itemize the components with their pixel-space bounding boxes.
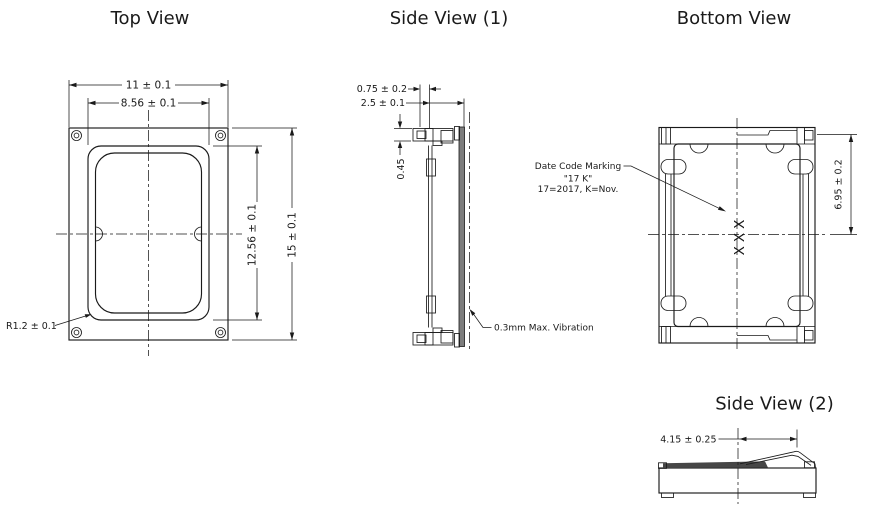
dim-terminal-protrusion-label: 0.75 ± 0.2	[357, 84, 407, 95]
bottom-view: Bottom View XXX Date Code Marki	[535, 8, 857, 352]
top-view: Top View 11 ± 0.1	[6, 8, 299, 356]
bottom-view-title: Bottom View	[677, 8, 791, 29]
side-view-1: Side View (1)	[357, 8, 594, 352]
foot	[662, 493, 674, 498]
top-view-title: Top View	[110, 8, 190, 29]
date-code-line3: 17=2017, K=Nov.	[538, 185, 619, 195]
side-view-1-title: Side View (1)	[390, 8, 509, 29]
date-code-line1: Date Code Marking	[535, 162, 621, 172]
dim-center-to-edge: 6.95 ± 0.2	[817, 135, 857, 235]
body-back-edge	[429, 146, 433, 328]
corner-radius-callout: R1.2 ± 0.1	[6, 314, 92, 332]
dim-inner-height-label: 12.56 ± 0.1	[247, 204, 259, 266]
date-code-line2: "17 K"	[564, 175, 593, 185]
dim-inner-height: 12.56 ± 0.1	[213, 146, 262, 320]
top-terminal	[413, 127, 460, 146]
top-strip	[663, 461, 768, 468]
corner-eyelet	[72, 131, 82, 141]
drawing-sheet: Top View 11 ± 0.1	[0, 0, 870, 508]
front-face	[459, 127, 465, 347]
dim-terminal-thickness-label: 0.45	[396, 158, 407, 179]
side-view-2: Side View (2) 4.15 ± 0.25	[659, 394, 834, 505]
dim-outer-height-label: 15 ± 0.1	[287, 212, 299, 258]
foot	[804, 493, 816, 498]
vibration-note: 0.3mm Max. Vibration	[470, 309, 594, 334]
bottom-view-outline: XXX	[648, 118, 828, 352]
wedge-edge-top	[737, 128, 805, 145]
dim-depth-label: 2.5 ± 0.1	[361, 98, 405, 109]
corner-eyelet	[216, 328, 226, 338]
vibration-note-label: 0.3mm Max. Vibration	[494, 324, 594, 334]
technical-drawing-page: Top View 11 ± 0.1	[0, 0, 870, 508]
side-view-1-outline	[413, 112, 470, 352]
dim-outer-width-label: 11 ± 0.1	[126, 80, 172, 92]
dim-contact-offset: 4.15 ± 0.25	[660, 430, 797, 448]
top-view-outline	[56, 110, 242, 356]
side-view-2-title: Side View (2)	[715, 394, 834, 415]
date-code-callout: Date Code Marking "17 K" 17=2017, K=Nov.	[535, 162, 726, 212]
corner-eyelet	[216, 131, 226, 141]
date-code-marking-glyphs: XXX	[732, 216, 748, 256]
dim-depth: 2.5 ± 0.1	[361, 98, 464, 127]
bottom-terminal	[413, 328, 460, 347]
dim-center-to-edge-label: 6.95 ± 0.2	[834, 159, 845, 209]
corner-radius-label: R1.2 ± 0.1	[6, 321, 57, 332]
corner-eyelet	[72, 328, 82, 338]
dim-contact-offset-label: 4.15 ± 0.25	[660, 435, 716, 446]
dim-inner-width-label: 8.56 ± 0.1	[121, 98, 177, 110]
body	[659, 468, 816, 493]
dim-terminal-thickness: 0.45	[394, 114, 412, 180]
wedge-edge-bottom	[737, 327, 805, 344]
